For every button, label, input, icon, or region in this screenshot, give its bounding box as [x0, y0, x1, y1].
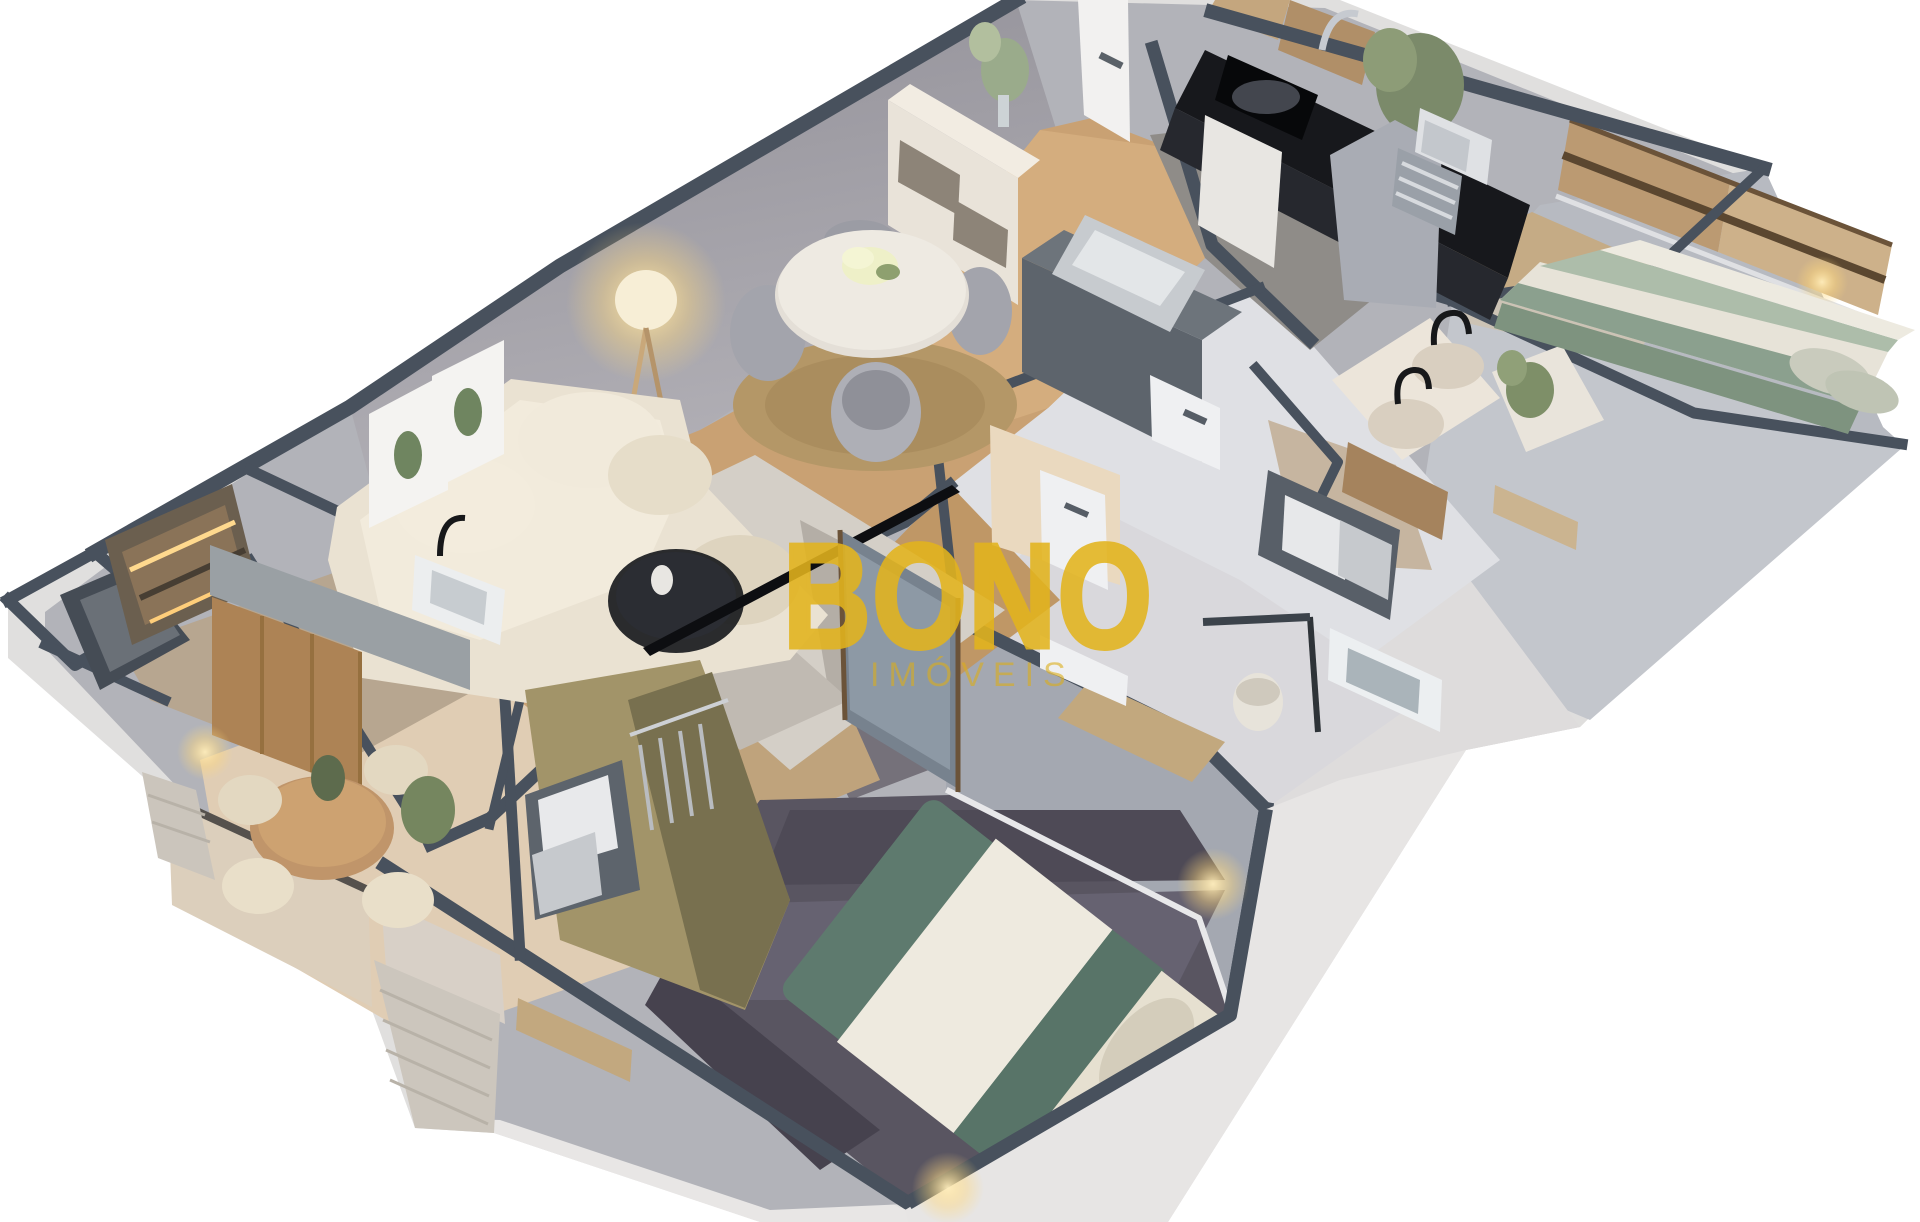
- svg-text:BONO: BONO: [783, 512, 1154, 678]
- svg-text:IMÓVEIS: IMÓVEIS: [870, 656, 1075, 694]
